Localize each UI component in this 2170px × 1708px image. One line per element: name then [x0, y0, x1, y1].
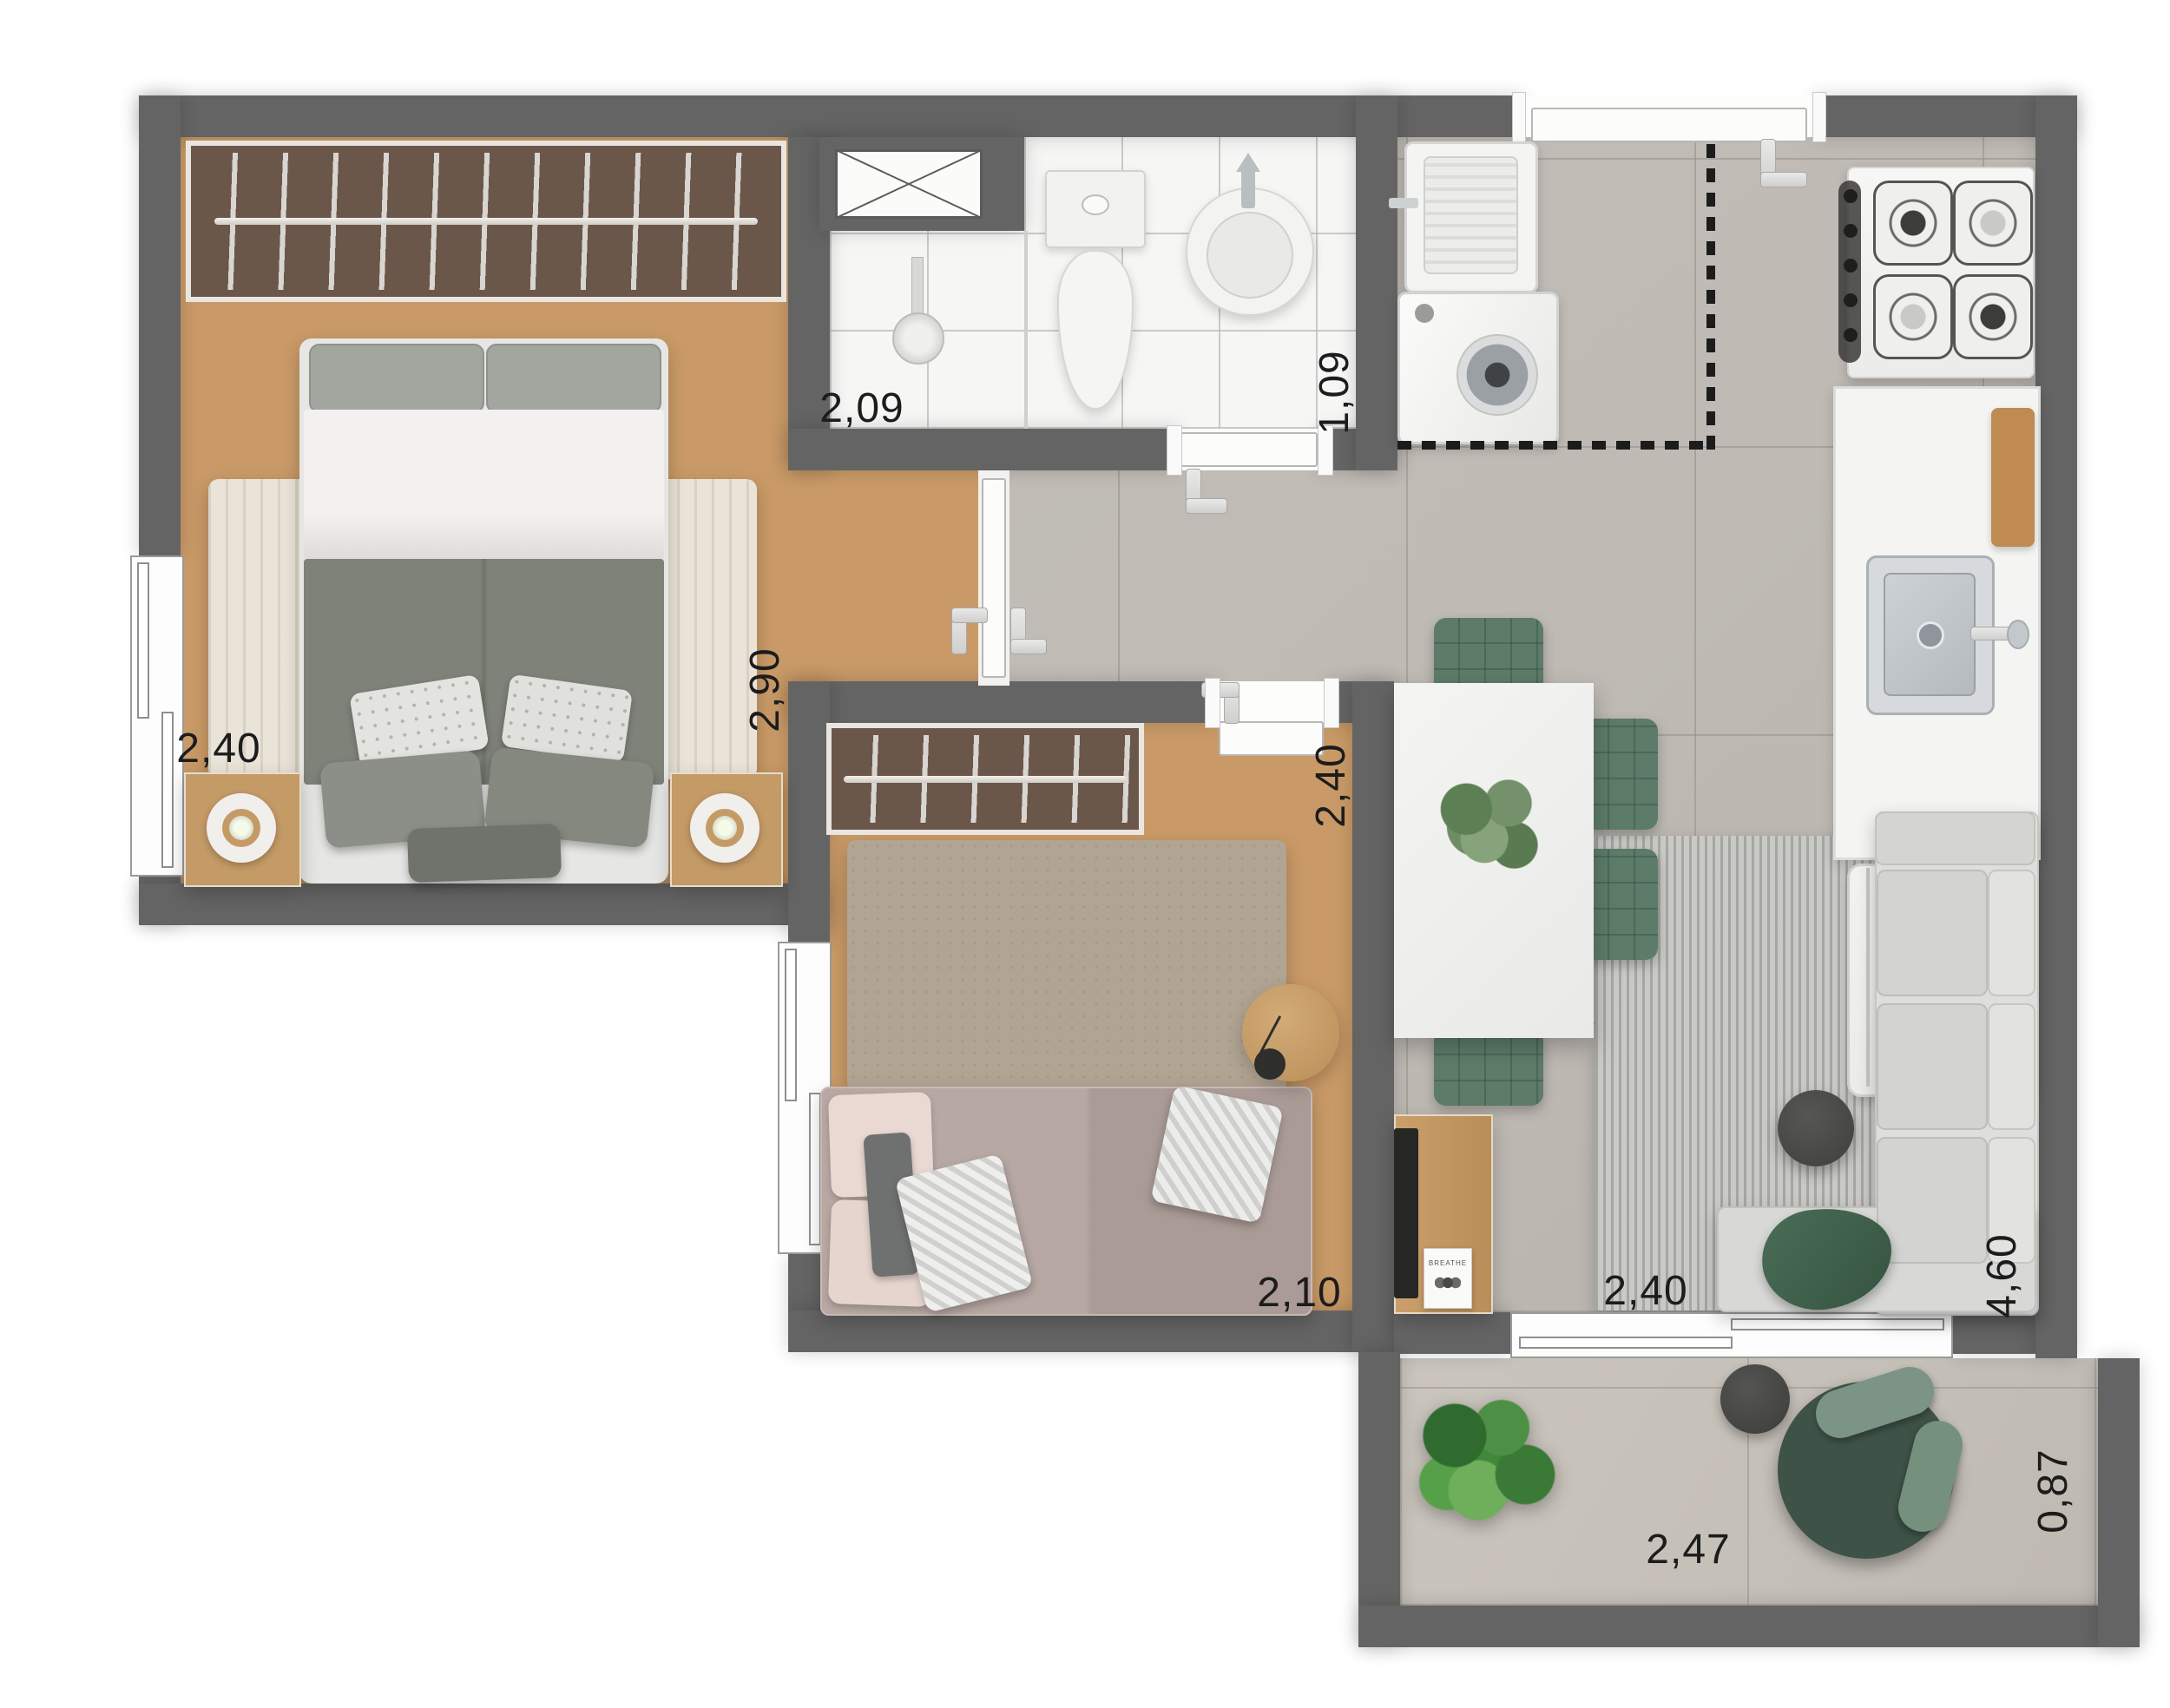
bedroom2-jamb-right [1324, 678, 1339, 728]
fridge-hinge-line [1866, 868, 1870, 1087]
dining-chair-right-1 [1583, 719, 1658, 830]
dim-bedroom2-depth: 2,40 [1311, 743, 1352, 827]
wall-bedroom2-top-left [788, 681, 1217, 723]
burner-bottom-right [1953, 274, 2033, 359]
bathroom-door-leaf [1180, 432, 1318, 467]
bedroom2-jamb-left [1205, 678, 1220, 728]
dim-bathroom-depth: 1,09 [1314, 350, 1356, 434]
bed1-pillow-dark-center [407, 824, 562, 883]
wall-living-bottom-left [1394, 1312, 1510, 1354]
cutting-board [1991, 408, 2035, 547]
sofa-seat-cushion-3 [1877, 1137, 1988, 1264]
bedroom1-door-leaf [982, 478, 1006, 678]
stove-knob-2 [1844, 224, 1858, 238]
kitchen-sink-drain [1917, 621, 1944, 649]
stove-knob-4 [1844, 293, 1858, 307]
stove-knob-3 [1844, 259, 1858, 273]
burner-top-right [1953, 181, 2033, 266]
balcony-side-table [1720, 1364, 1790, 1434]
dining-chair-bottom [1434, 1029, 1543, 1106]
floor-plan: BREATHE 2,40 2,90 2,09 1,09 2,40 2,10 2,… [0, 0, 2170, 1708]
coffee-table [1778, 1090, 1854, 1166]
laundry-faucet-icon [1389, 198, 1418, 208]
sofa-back-cushion-1 [1988, 870, 2035, 996]
wall-bathroom-laundry [1356, 95, 1397, 470]
bedroom1-closet [186, 141, 786, 302]
wall-bedroom2-living [1352, 681, 1394, 1352]
laundry-boundary-dotted-right [1706, 137, 1715, 450]
burner-top-left [1873, 181, 1953, 266]
sofa-seat-cushion-1 [1877, 870, 1988, 996]
wall-balcony-right [2098, 1358, 2140, 1647]
dim-bedroom1-width: 2,40 [176, 728, 260, 770]
wall-living-bottom-right [1953, 1312, 2035, 1354]
entry-jamb-right [1812, 92, 1826, 142]
burner-bottom-left [1873, 274, 1953, 359]
dim-bathroom-width: 2,09 [819, 388, 904, 430]
bed1-headboard-cushion-right [486, 344, 661, 413]
shower-glass-partition [1024, 231, 1028, 429]
bedroom1-closet-rail [214, 218, 758, 225]
shower-arm [911, 257, 924, 319]
bedroom2-closet-rail [844, 776, 1127, 783]
wall-bathroom-bottom-left [788, 429, 1179, 470]
wall-balcony-bottom [1358, 1606, 2140, 1647]
stove-knob-5 [1844, 328, 1858, 342]
bathroom-faucet-arrow [1236, 153, 1260, 172]
stove-knob-1 [1844, 189, 1858, 203]
washing-machine-door [1457, 334, 1538, 416]
entry-door-handle-grip [1760, 172, 1807, 187]
wall-bedroom1-bottom [139, 884, 830, 925]
bedroom2-rug [847, 840, 1286, 1092]
laundry-tank-basin [1424, 156, 1518, 274]
tv [1394, 1128, 1418, 1298]
bedroom2-closet [826, 723, 1144, 835]
toilet-flush-button [1082, 194, 1109, 215]
bathroom-jamb-left [1167, 425, 1182, 476]
entry-door-leaf [1531, 108, 1807, 142]
dim-balcony-width: 2,47 [1646, 1529, 1730, 1571]
dim-living-depth: 4,60 [1982, 1233, 2023, 1317]
living-balcony-sliding-door [1510, 1312, 1953, 1358]
balcony-plant [1408, 1389, 1564, 1545]
wall-bedroom2-bottom [788, 1311, 1394, 1352]
bathroom-sink-bowl [1207, 212, 1293, 299]
nightstand-left-lamp-bulb [229, 816, 253, 840]
wall-left-upper [139, 95, 181, 555]
wall-balcony-left [1358, 1352, 1400, 1647]
bathroom-faucet-icon [1241, 170, 1255, 208]
sofa-back-cushion-2 [1988, 1003, 2035, 1130]
dining-chair-right-2 [1583, 849, 1658, 960]
kitchen-faucet-base [2007, 620, 2029, 649]
bedroom1-door-handle-inside-grip [951, 608, 988, 623]
bedroom2-table-lamp [1254, 1048, 1286, 1080]
shower-head-icon [892, 312, 944, 365]
bed1-headboard-cushion-left [309, 344, 484, 413]
decor-book-title: BREATHE [1429, 1259, 1467, 1267]
dim-bedroom2-width: 2,10 [1257, 1272, 1341, 1314]
bed1-folded-sheet [304, 410, 664, 559]
shaft-niche-box [835, 149, 983, 219]
dim-balcony-depth: 0,87 [2033, 1449, 2075, 1533]
washing-machine-dial [1415, 304, 1434, 323]
dim-living-width: 2,40 [1603, 1271, 1687, 1312]
wall-right [2035, 95, 2077, 1358]
laundry-boundary-dotted-bottom [1397, 441, 1715, 450]
sofa-seat-cushion-2 [1877, 1003, 1988, 1130]
sofa-armrest-top [1875, 811, 2035, 865]
bedroom1-door-handle-hall-grip [1010, 639, 1047, 654]
decor-book-art [1435, 1271, 1461, 1294]
nightstand-right-lamp-bulb [713, 816, 737, 840]
wall-bedroom2-left-upper [788, 681, 830, 942]
decor-book: BREATHE [1424, 1248, 1472, 1309]
wall-top-left [139, 95, 1523, 137]
dim-bedroom1-depth: 2,90 [745, 647, 786, 732]
bedroom1-window [130, 555, 184, 877]
entry-jamb-left [1512, 92, 1526, 142]
bathroom-door-handle-grip [1186, 498, 1227, 514]
dining-table-plant [1430, 767, 1550, 887]
